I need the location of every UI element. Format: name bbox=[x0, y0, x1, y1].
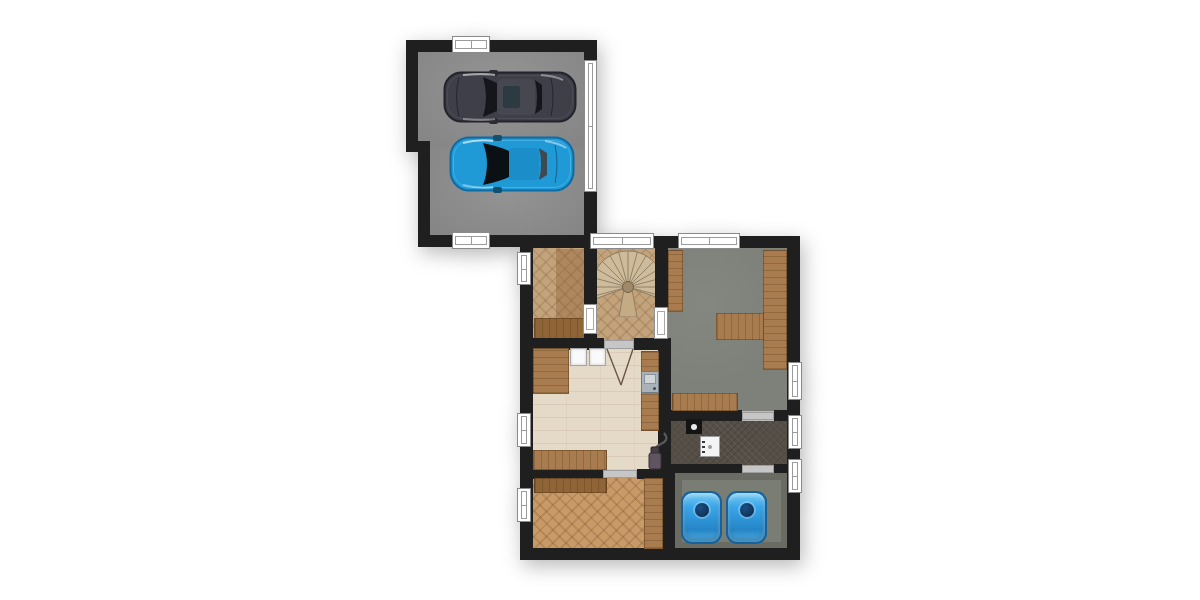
workshop-bench-right bbox=[763, 250, 787, 370]
doorway-sill-boiler-top bbox=[742, 412, 774, 420]
floor-plan bbox=[0, 0, 1200, 600]
parquet-sw-window-left bbox=[517, 488, 531, 522]
floor-plan-canvas bbox=[0, 0, 1200, 600]
garage-wall-top bbox=[406, 40, 597, 52]
workshop-bench-arm bbox=[716, 313, 764, 340]
doorway-sill-boiler-bottom bbox=[742, 465, 774, 473]
swing-door-utility bbox=[604, 349, 636, 389]
garage-wall-left-lower bbox=[418, 141, 430, 247]
utility-window-left bbox=[517, 413, 531, 447]
dryer bbox=[589, 348, 606, 366]
vacuum-cleaner bbox=[642, 432, 666, 472]
boiler-appliance bbox=[700, 436, 720, 457]
stair-hall-window-top bbox=[590, 233, 654, 249]
spiral-staircase-drawing bbox=[597, 247, 656, 317]
plank-strip-parquet-sw bbox=[644, 478, 663, 549]
boiler-window-right bbox=[788, 415, 802, 449]
wall-sw-tankroom bbox=[662, 469, 675, 560]
spiral-staircase bbox=[597, 247, 656, 317]
utility-counter-top-left bbox=[533, 348, 569, 394]
water-tank-left bbox=[681, 491, 722, 544]
wall-workshop-bottom-left bbox=[668, 410, 742, 421]
doorway-sill-utility-top bbox=[604, 340, 634, 349]
support-column bbox=[686, 419, 702, 434]
plan-wall-bottom bbox=[520, 548, 800, 560]
sink-unit bbox=[641, 371, 659, 393]
shelf-parquet-sw bbox=[534, 478, 607, 493]
washer bbox=[570, 348, 587, 366]
parquet-nw-window-left bbox=[517, 252, 531, 285]
doorway-sill-parquet-sw-top bbox=[603, 470, 637, 478]
bench-room-nw bbox=[534, 318, 585, 339]
workshop-window-right bbox=[788, 362, 802, 400]
tank-room-window-right bbox=[788, 459, 802, 493]
garage-wall-left-upper bbox=[406, 40, 418, 152]
water-tank-right bbox=[726, 491, 767, 544]
garage-window-top bbox=[452, 36, 490, 53]
wall-boiler-bottom-left bbox=[668, 464, 742, 473]
door-parquet-nw-to-stairhall bbox=[583, 304, 597, 334]
utility-counter-bottom bbox=[533, 450, 607, 470]
dark-sedan-car bbox=[443, 70, 577, 124]
door-stairhall-to-workshop bbox=[654, 307, 668, 339]
garage-window-bottom bbox=[452, 232, 490, 249]
blue-sedan-car bbox=[449, 135, 575, 193]
workshop-bench-bottom bbox=[672, 393, 738, 411]
workshop-bench-left bbox=[668, 250, 683, 312]
garage-door bbox=[584, 60, 597, 192]
wardrobe bbox=[556, 249, 584, 321]
workshop-window-top bbox=[678, 233, 740, 249]
